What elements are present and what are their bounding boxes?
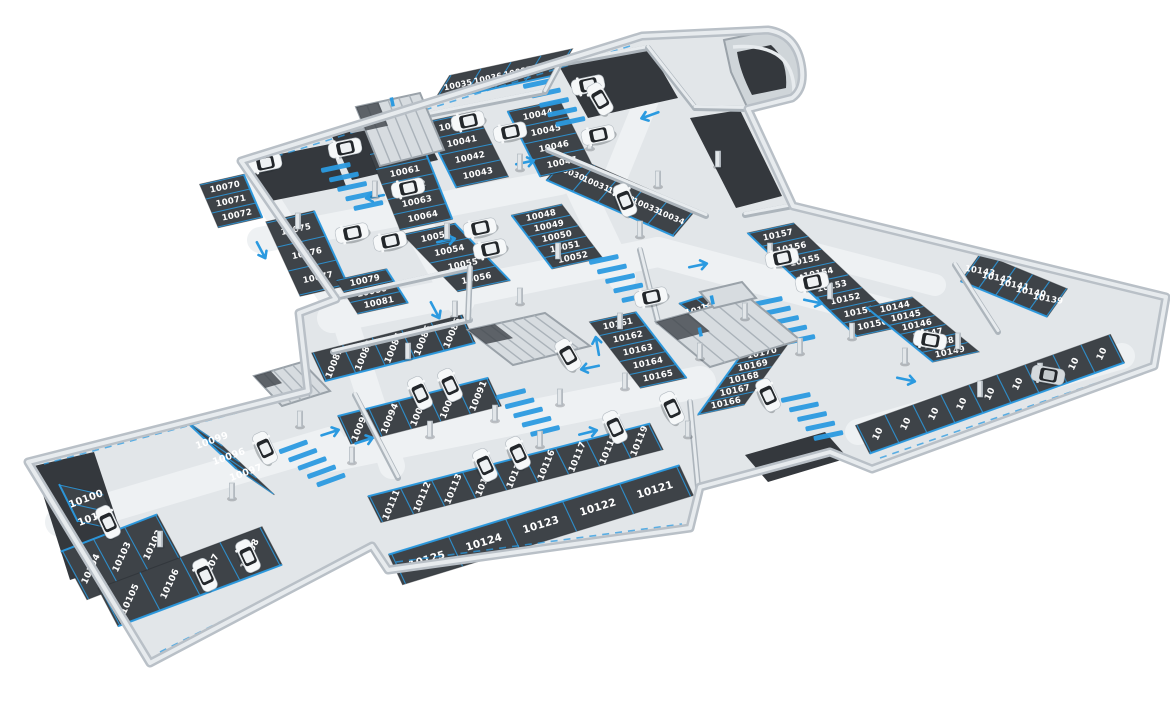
garage-floor-plan-svg: 1003510036100371003810030100311003210033… (0, 0, 1170, 707)
parking-garage-map: 1003510036100371003810030100311003210033… (0, 0, 1170, 707)
